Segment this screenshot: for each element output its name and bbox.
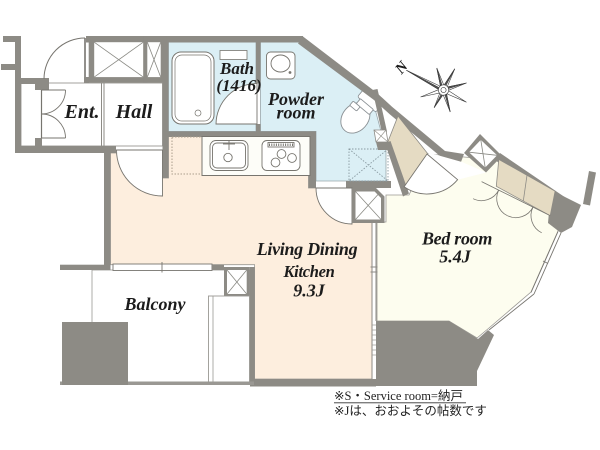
svg-text:5.4J: 5.4J [439,247,472,267]
svg-text:Kitchen: Kitchen [282,262,334,281]
svg-text:※Jは、おおよその帖数です: ※Jは、おおよその帖数です [334,403,487,418]
svg-text:9.3J: 9.3J [293,281,326,301]
svg-text:Bed room: Bed room [421,229,492,249]
svg-text:※S・Service room=納戸: ※S・Service room=納戸 [334,389,463,403]
svg-text:Ent.: Ent. [63,101,99,123]
svg-text:Balcony: Balcony [124,294,187,314]
svg-text:Living Dining: Living Dining [256,239,358,259]
svg-text:room: room [276,103,315,123]
svg-text:(1416): (1416) [216,76,261,95]
svg-text:Hall: Hall [115,101,153,123]
